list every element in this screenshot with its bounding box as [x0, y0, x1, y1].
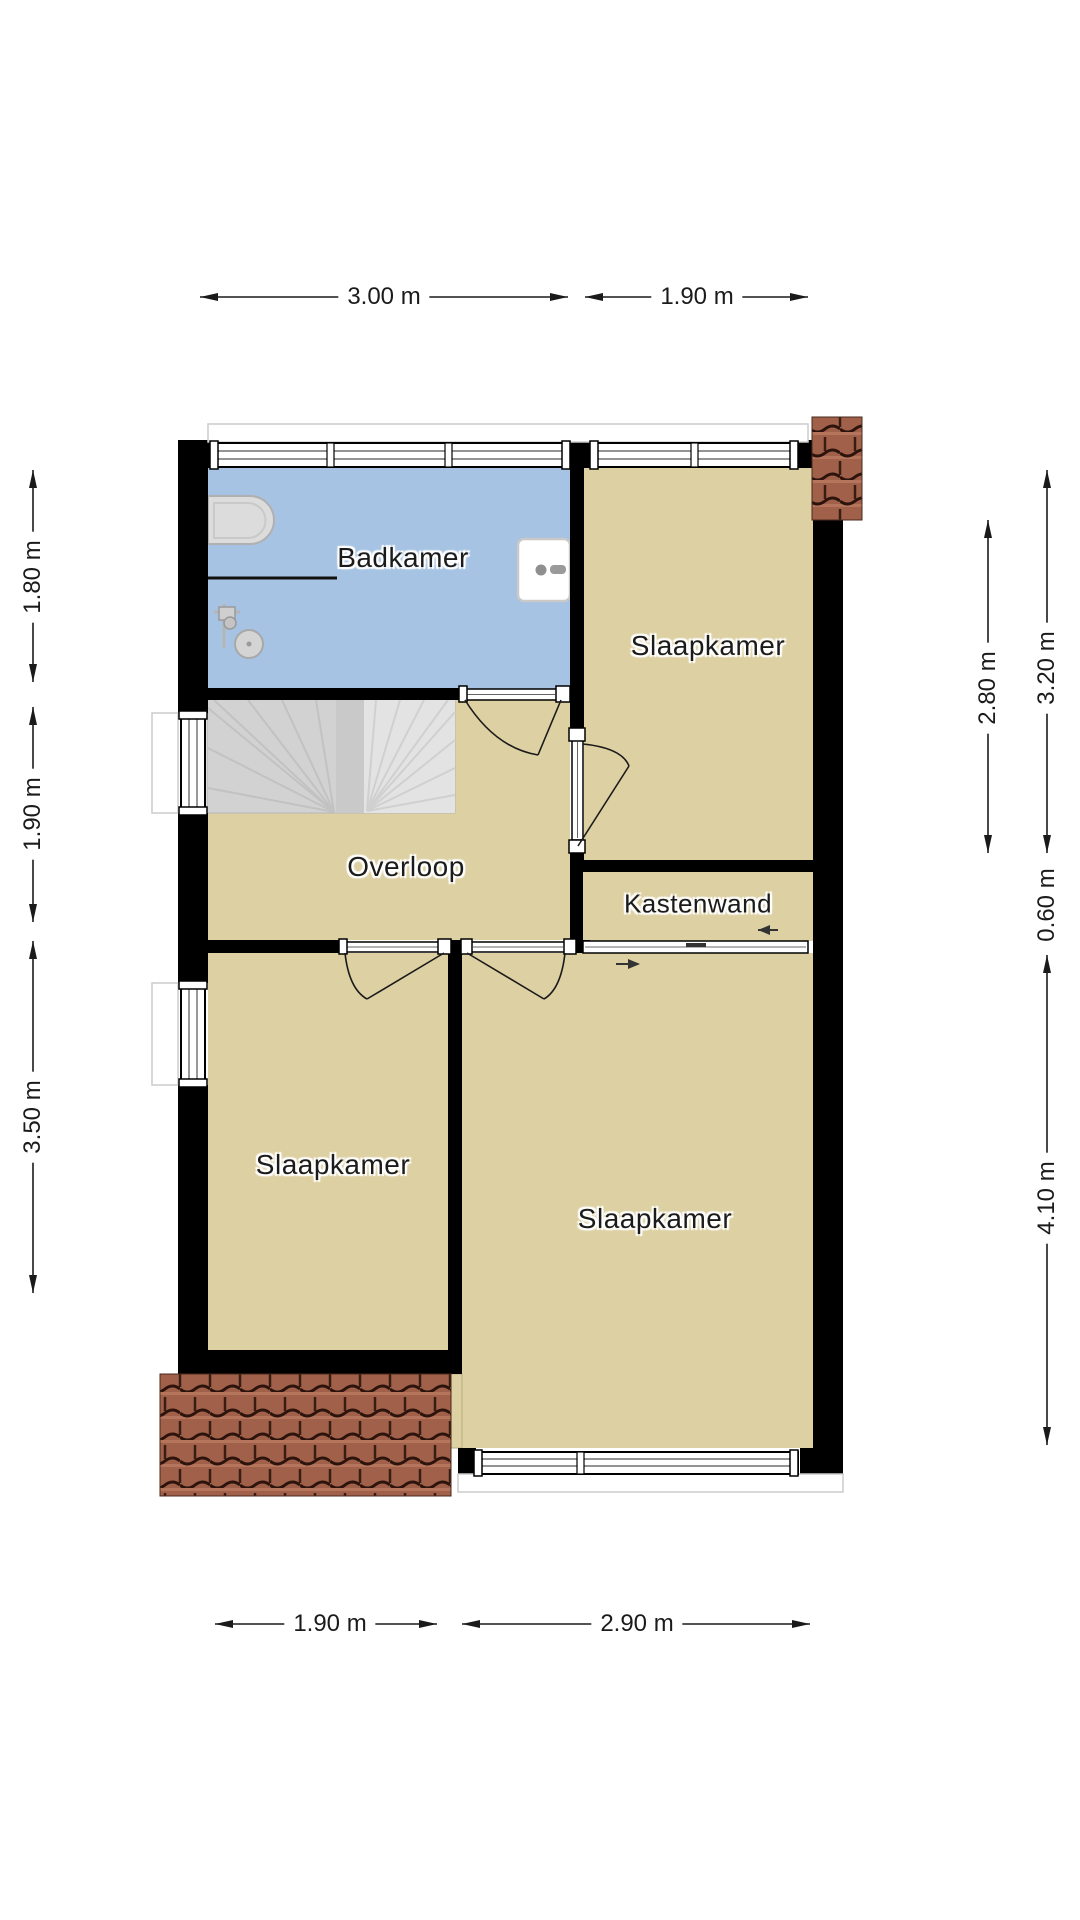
slaapkamer-tr-floor: [584, 468, 813, 860]
dim-label-top-right: 1.90 m: [651, 282, 742, 312]
room-label-kastenwand: Kastenwand: [624, 889, 772, 920]
window-top-slaapkamer: [590, 441, 798, 469]
room-label-overloop: Overloop: [347, 851, 465, 883]
roof-tiles-top-right: [812, 417, 862, 520]
dim-label-right-inner: 2.80 m: [973, 642, 1003, 733]
floorplan-canvas: Badkamer Slaapkamer Overloop Kastenwand …: [0, 0, 1080, 1920]
room-label-slaapkamer-tr: Slaapkamer: [631, 630, 785, 662]
room-label-badkamer: Badkamer: [337, 542, 469, 574]
window-bottom-slaapkamer: [474, 1450, 798, 1476]
window-left-overloop: [179, 711, 207, 815]
room-floors: [208, 468, 813, 1448]
slaapkamer-br-floor: [462, 953, 813, 1448]
sink-icon: [518, 539, 570, 601]
stairs: [207, 698, 455, 813]
room-label-slaapkamer-br: Slaapkamer: [578, 1203, 732, 1235]
dim-label-right-outer-1: 3.20 m: [1032, 622, 1062, 713]
dim-label-top-left: 3.00 m: [338, 282, 429, 312]
room-label-slaapkamer-bl: Slaapkamer: [256, 1149, 410, 1181]
dim-label-bottom-right: 2.90 m: [591, 1609, 682, 1639]
roof-tiles-bottom-left: [160, 1374, 451, 1496]
dim-label-bottom-left: 1.90 m: [284, 1609, 375, 1639]
dim-label-left-1: 1.80 m: [18, 531, 48, 622]
window-top-badkamer: [210, 441, 570, 469]
window-left-slaapkamer: [179, 981, 207, 1087]
dim-label-left-2: 1.90 m: [18, 768, 48, 859]
floorplan-drawing: [0, 0, 1080, 1920]
bathtub-icon: [208, 496, 274, 544]
dim-label-left-3: 3.50 m: [18, 1071, 48, 1162]
dim-label-right-outer-2: 0.60 m: [1032, 859, 1062, 950]
dim-label-right-outer-3: 4.10 m: [1032, 1152, 1062, 1243]
